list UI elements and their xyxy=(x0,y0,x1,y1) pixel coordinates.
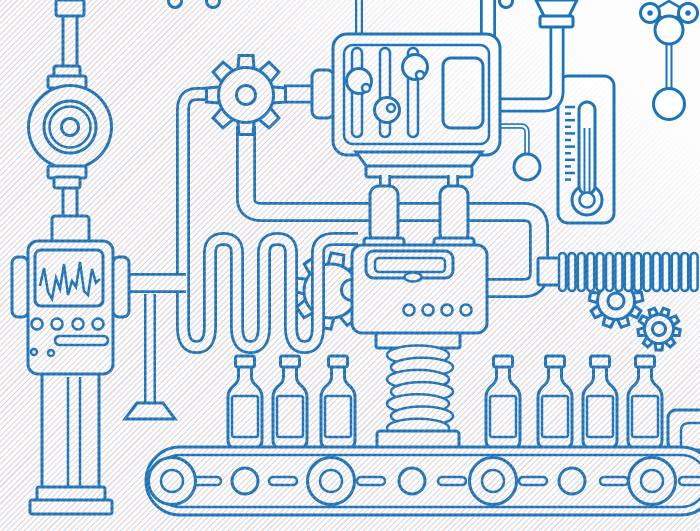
monitor-ear-left xyxy=(12,257,28,317)
bottle xyxy=(583,356,617,448)
nozzle-pipe xyxy=(497,22,557,105)
hose-rib xyxy=(662,253,669,291)
indicator-dot xyxy=(423,305,434,316)
bottle xyxy=(538,356,572,448)
sensor-node xyxy=(514,154,540,180)
monitor-button[interactable] xyxy=(93,319,104,330)
thermometer xyxy=(558,76,614,223)
piston-assembly xyxy=(356,152,482,248)
piston-right xyxy=(440,186,468,242)
hose-rib xyxy=(644,253,651,291)
monitor-button[interactable] xyxy=(32,319,43,330)
panel-display xyxy=(443,58,483,128)
gauge-collar-bottom-small xyxy=(54,177,80,188)
indicator-dot xyxy=(442,305,453,316)
pedestal-plate-upper xyxy=(37,487,105,500)
hose-rib xyxy=(587,253,594,291)
gauge-cap xyxy=(56,0,84,16)
bottle-cap xyxy=(281,356,300,367)
piston-left xyxy=(370,186,398,242)
bottle xyxy=(228,356,262,448)
monitor-ear-right xyxy=(113,257,129,317)
roller-small xyxy=(399,468,425,494)
bearing-pin-left xyxy=(647,10,653,16)
roller-hub xyxy=(482,470,504,492)
gear-large xyxy=(207,56,286,135)
hose-rib xyxy=(606,253,613,291)
pedestal-plate-lower xyxy=(30,500,112,514)
panel-side-tab xyxy=(312,70,334,118)
hose-rib xyxy=(625,253,632,291)
bearing-pin-right xyxy=(685,10,691,16)
hose-rib xyxy=(597,253,604,291)
gear-small-right-icon xyxy=(638,308,680,350)
edge-box xyxy=(668,410,700,450)
hose-rib xyxy=(615,253,622,291)
illustration-canvas xyxy=(0,0,700,531)
belt-dash xyxy=(269,477,297,485)
support-foot xyxy=(125,403,175,419)
bottle-cap xyxy=(636,356,655,367)
gauge-hub xyxy=(62,119,79,136)
monitor-slot xyxy=(55,336,108,345)
nozzle-collar xyxy=(540,16,573,27)
slider-knob-dot xyxy=(387,104,395,112)
monitor-unit xyxy=(12,216,129,514)
pulley-joint-ball xyxy=(655,16,683,44)
belt-dash xyxy=(438,477,466,485)
bottle-cap xyxy=(546,356,565,367)
hose-rib xyxy=(578,253,585,291)
gear-hub xyxy=(653,323,666,336)
bottle xyxy=(273,356,307,448)
bottle-cap xyxy=(329,356,348,367)
roller-small xyxy=(232,468,258,494)
pulley-arm xyxy=(641,1,698,120)
hanging-loop xyxy=(207,0,220,8)
panel-sliders xyxy=(347,48,428,137)
bottle xyxy=(486,356,520,448)
roller-hub xyxy=(320,470,342,492)
hose-rib xyxy=(559,253,566,291)
spring xyxy=(387,346,453,438)
monitor-top-block xyxy=(52,216,89,243)
machine-illustration-svg xyxy=(0,0,700,531)
hose-rib xyxy=(568,253,575,291)
mixer-unit xyxy=(342,245,488,348)
display-latch xyxy=(405,273,422,282)
slider-knob-dot xyxy=(362,84,370,92)
roller-hub xyxy=(641,470,663,492)
gear-right-second xyxy=(638,308,680,350)
belt-dash xyxy=(193,477,221,485)
ribbed-hose xyxy=(538,253,698,291)
bottle-cap xyxy=(494,356,513,367)
hose-rib xyxy=(653,253,660,291)
gear-large-icon xyxy=(207,56,286,135)
belt-dash xyxy=(679,477,700,485)
belt-dash xyxy=(600,477,628,485)
hose-connector xyxy=(538,258,560,285)
monitor-led-1 xyxy=(31,349,37,355)
roller-hub xyxy=(161,470,183,492)
slider-knob-dot xyxy=(416,71,424,79)
bottle xyxy=(628,356,662,448)
gear-hub xyxy=(237,86,256,105)
hose-rib xyxy=(634,253,641,291)
monitor-button[interactable] xyxy=(73,319,84,330)
pipe-support-leg xyxy=(125,294,175,419)
hose-ribs xyxy=(559,253,698,291)
monitor-button[interactable] xyxy=(52,319,63,330)
pulley-weight-ball xyxy=(654,89,685,120)
conveyor-belt xyxy=(146,447,700,515)
nozzle-funnel xyxy=(536,0,577,16)
bottle xyxy=(321,356,355,448)
hanging-loop xyxy=(500,0,513,8)
hose-rib xyxy=(681,253,688,291)
hanging-loops xyxy=(169,0,513,8)
nozzle-pipe-bore xyxy=(497,22,557,105)
indicator-dot xyxy=(461,305,472,316)
hose-rib xyxy=(672,253,679,291)
pedestal-column xyxy=(42,374,99,487)
control-panel xyxy=(312,34,500,155)
thermometer-mercury xyxy=(580,193,595,208)
indicator-dot xyxy=(404,305,415,316)
bottle-cap xyxy=(236,356,255,367)
edge-box-body xyxy=(668,410,700,450)
monitor-led-2 xyxy=(48,350,54,356)
belt-dash xyxy=(519,477,547,485)
roller-small xyxy=(559,468,585,494)
bottle-cap xyxy=(591,356,610,367)
nozzle xyxy=(536,0,577,27)
hanging-loop xyxy=(169,0,182,8)
belt-dash xyxy=(357,477,385,485)
hose-rib xyxy=(691,253,698,291)
gear-hub xyxy=(608,293,624,309)
